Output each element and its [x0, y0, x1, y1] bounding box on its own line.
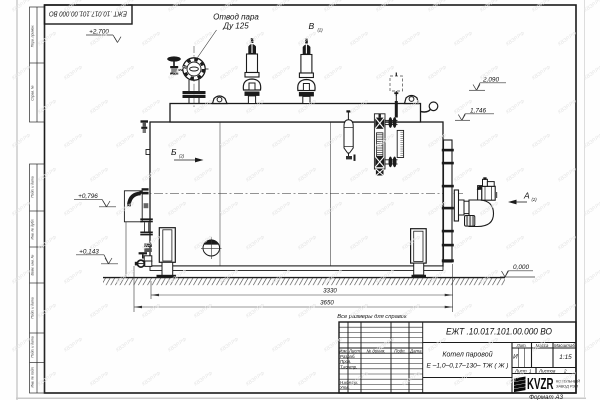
svg-text:Ду 125: Ду 125	[222, 22, 249, 31]
svg-text:Масштаб: Масштаб	[554, 343, 576, 348]
svg-text:Инв. № подл.: Инв. № подл.	[31, 366, 35, 387]
svg-text:Взам. инв. №: Взам. инв. №	[31, 254, 35, 275]
svg-text:Перв. примен.: Перв. примен.	[31, 25, 35, 48]
svg-text:Формат А3: Формат А3	[529, 394, 563, 400]
svg-text:И: И	[513, 354, 518, 361]
svg-text:ЕЖТ .10.017.101.00.000 ВО: ЕЖТ .10.017.101.00.000 ВО	[49, 10, 127, 19]
svg-text:Изм.: Изм.	[340, 348, 348, 353]
svg-text:Подп.: Подп.	[394, 348, 405, 353]
svg-text:Отвод пара: Отвод пара	[213, 13, 259, 22]
svg-text:(2): (2)	[318, 28, 324, 33]
svg-text:В: В	[309, 21, 315, 31]
svg-text:Подп. и дата: Подп. и дата	[31, 176, 35, 197]
svg-text:1:15: 1:15	[559, 354, 572, 361]
svg-text:Инв. № дубл.: Инв. № дубл.	[31, 219, 35, 240]
svg-text:Пров.: Пров.	[340, 359, 351, 364]
svg-text:Лит.: Лит.	[516, 343, 527, 348]
svg-text:KVZR: KVZR	[527, 376, 554, 393]
svg-text:Е –1,0–0,17–130– ТЖ ( Ж ): Е –1,0–0,17–130– ТЖ ( Ж )	[427, 363, 509, 370]
svg-text:Утв.: Утв.	[340, 385, 350, 390]
svg-text:2: 2	[563, 369, 567, 374]
svg-text:1,746: 1,746	[470, 108, 486, 115]
svg-text:Котел паровой: Котел паровой	[442, 351, 492, 359]
svg-text:Подп. и дата: Подп. и дата	[31, 297, 35, 318]
svg-text:А: А	[523, 191, 530, 201]
svg-text:(2): (2)	[532, 197, 538, 202]
svg-text:Т.контр.: Т.контр.	[340, 364, 357, 369]
svg-text:Дата: Дата	[409, 348, 422, 353]
svg-text:3650: 3650	[320, 299, 334, 306]
svg-text:3330: 3330	[323, 287, 337, 294]
svg-text:Справ. №: Справ. №	[31, 85, 35, 101]
svg-text:Лист: Лист	[348, 348, 360, 353]
svg-text:(2): (2)	[179, 154, 185, 159]
svg-text:ЕЖТ .10.017.101.00.000 ВО: ЕЖТ .10.017.101.00.000 ВО	[446, 327, 552, 337]
svg-text:Все размеры для справок: Все размеры для справок	[337, 314, 407, 320]
svg-text:Листов: Листов	[538, 369, 556, 374]
svg-text:Подп. и дата: Подп. и дата	[31, 336, 35, 357]
svg-text:0,000: 0,000	[513, 264, 529, 271]
